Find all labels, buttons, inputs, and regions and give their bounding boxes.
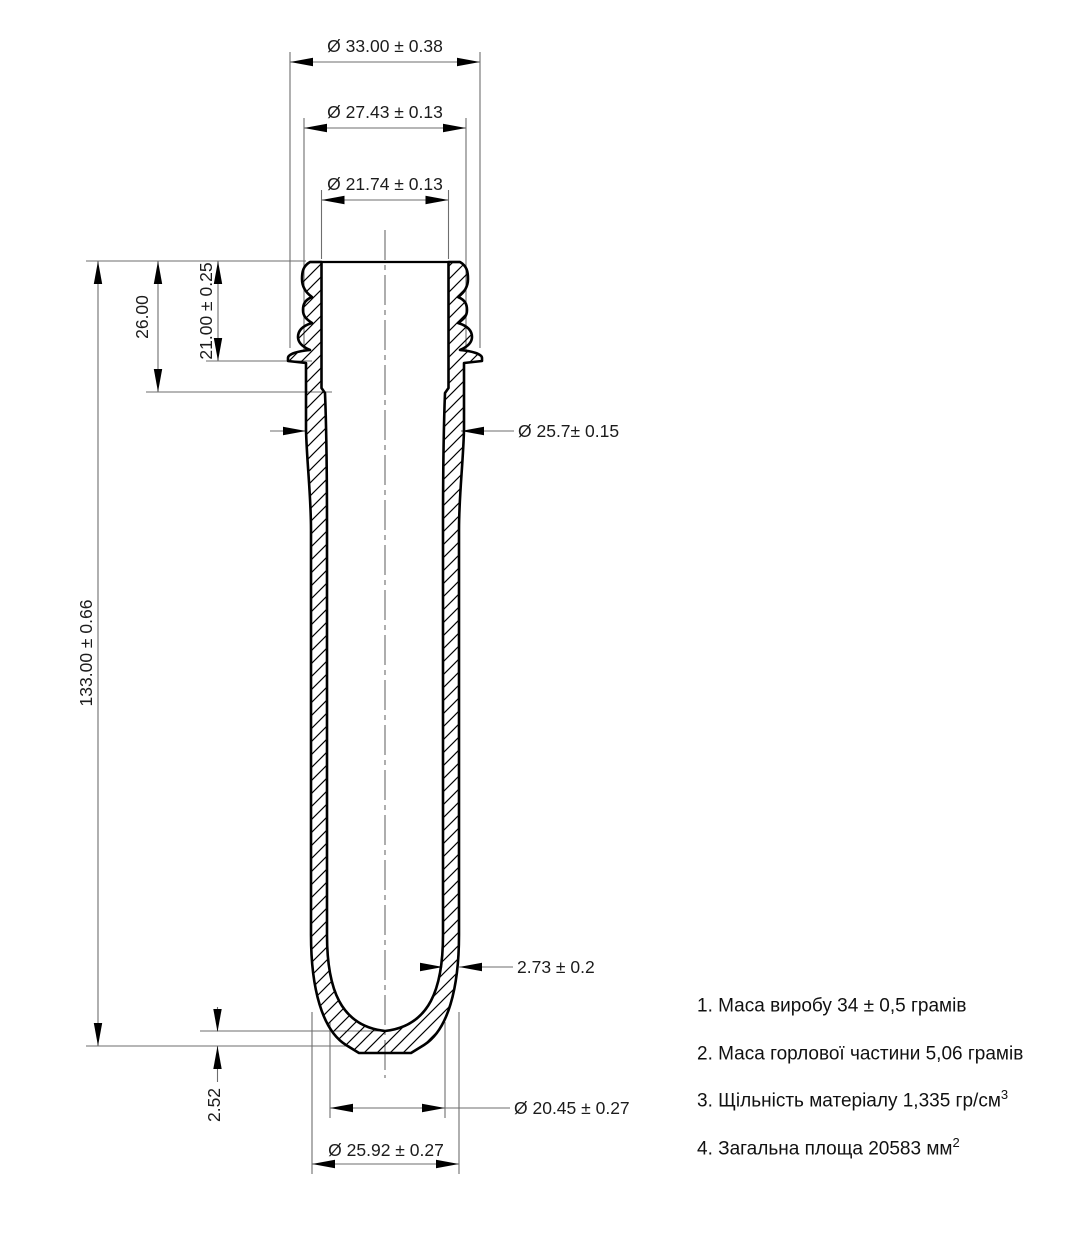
dim-neck-inner-dia-label: Ø 21.74 ± 0.13 (327, 174, 443, 194)
dimension-labels: Ø 33.00 ± 0.38 Ø 27.43 ± 0.13 Ø 21.74 ± … (76, 36, 630, 1160)
dim-neck-crest-dia-label: Ø 33.00 ± 0.38 (327, 36, 443, 56)
dim-thread-height-label: 21.00 ± 0.25 (196, 262, 216, 359)
dim-base-thickness-label: 2.52 (204, 1088, 224, 1122)
note-item: 2. Маса горлової частини 5,06 грамів (697, 1040, 1023, 1065)
preform-technical-drawing: Ø 33.00 ± 0.38 Ø 27.43 ± 0.13 Ø 21.74 ± … (0, 0, 1077, 1255)
dim-body-outer-dia-label: Ø 25.7± 0.15 (518, 421, 619, 441)
dim-neck-total-height-label: 26.00 (132, 295, 152, 339)
dim-wall-thickness-label: 2.73 ± 0.2 (517, 957, 595, 977)
note-text: 1. Маса виробу 34 ± 0,5 грамів (697, 995, 966, 1016)
dim-base-outer-dia-label: Ø 25.92 ± 0.27 (328, 1140, 444, 1160)
note-item: 4. Загальна площа 20583 мм2 (697, 1135, 960, 1160)
dimension-arrowheads (94, 58, 484, 1168)
note-text: 2. Маса горлової частини 5,06 грамів (697, 1043, 1023, 1064)
technical-drawing-canvas: Ø 33.00 ± 0.38 Ø 27.43 ± 0.13 Ø 21.74 ± … (0, 0, 1077, 1255)
note-item: 1. Маса виробу 34 ± 0,5 грамів (697, 992, 966, 1017)
note-item: 3. Щільність матеріалу 1,335 гр/см3 (697, 1087, 1008, 1112)
dim-neck-outer-dia-label: Ø 27.43 ± 0.13 (327, 102, 443, 122)
note-text: 3. Щільність матеріалу 1,335 гр/см (697, 1090, 1001, 1111)
note-text: 4. Загальна площа 20583 мм (697, 1138, 952, 1159)
note-superscript: 2 (952, 1135, 959, 1150)
note-superscript: 3 (1001, 1087, 1008, 1102)
dim-overall-length-label: 133.00 ± 0.66 (76, 600, 96, 707)
dim-base-inner-dia-label: Ø 20.45 ± 0.27 (514, 1098, 630, 1118)
